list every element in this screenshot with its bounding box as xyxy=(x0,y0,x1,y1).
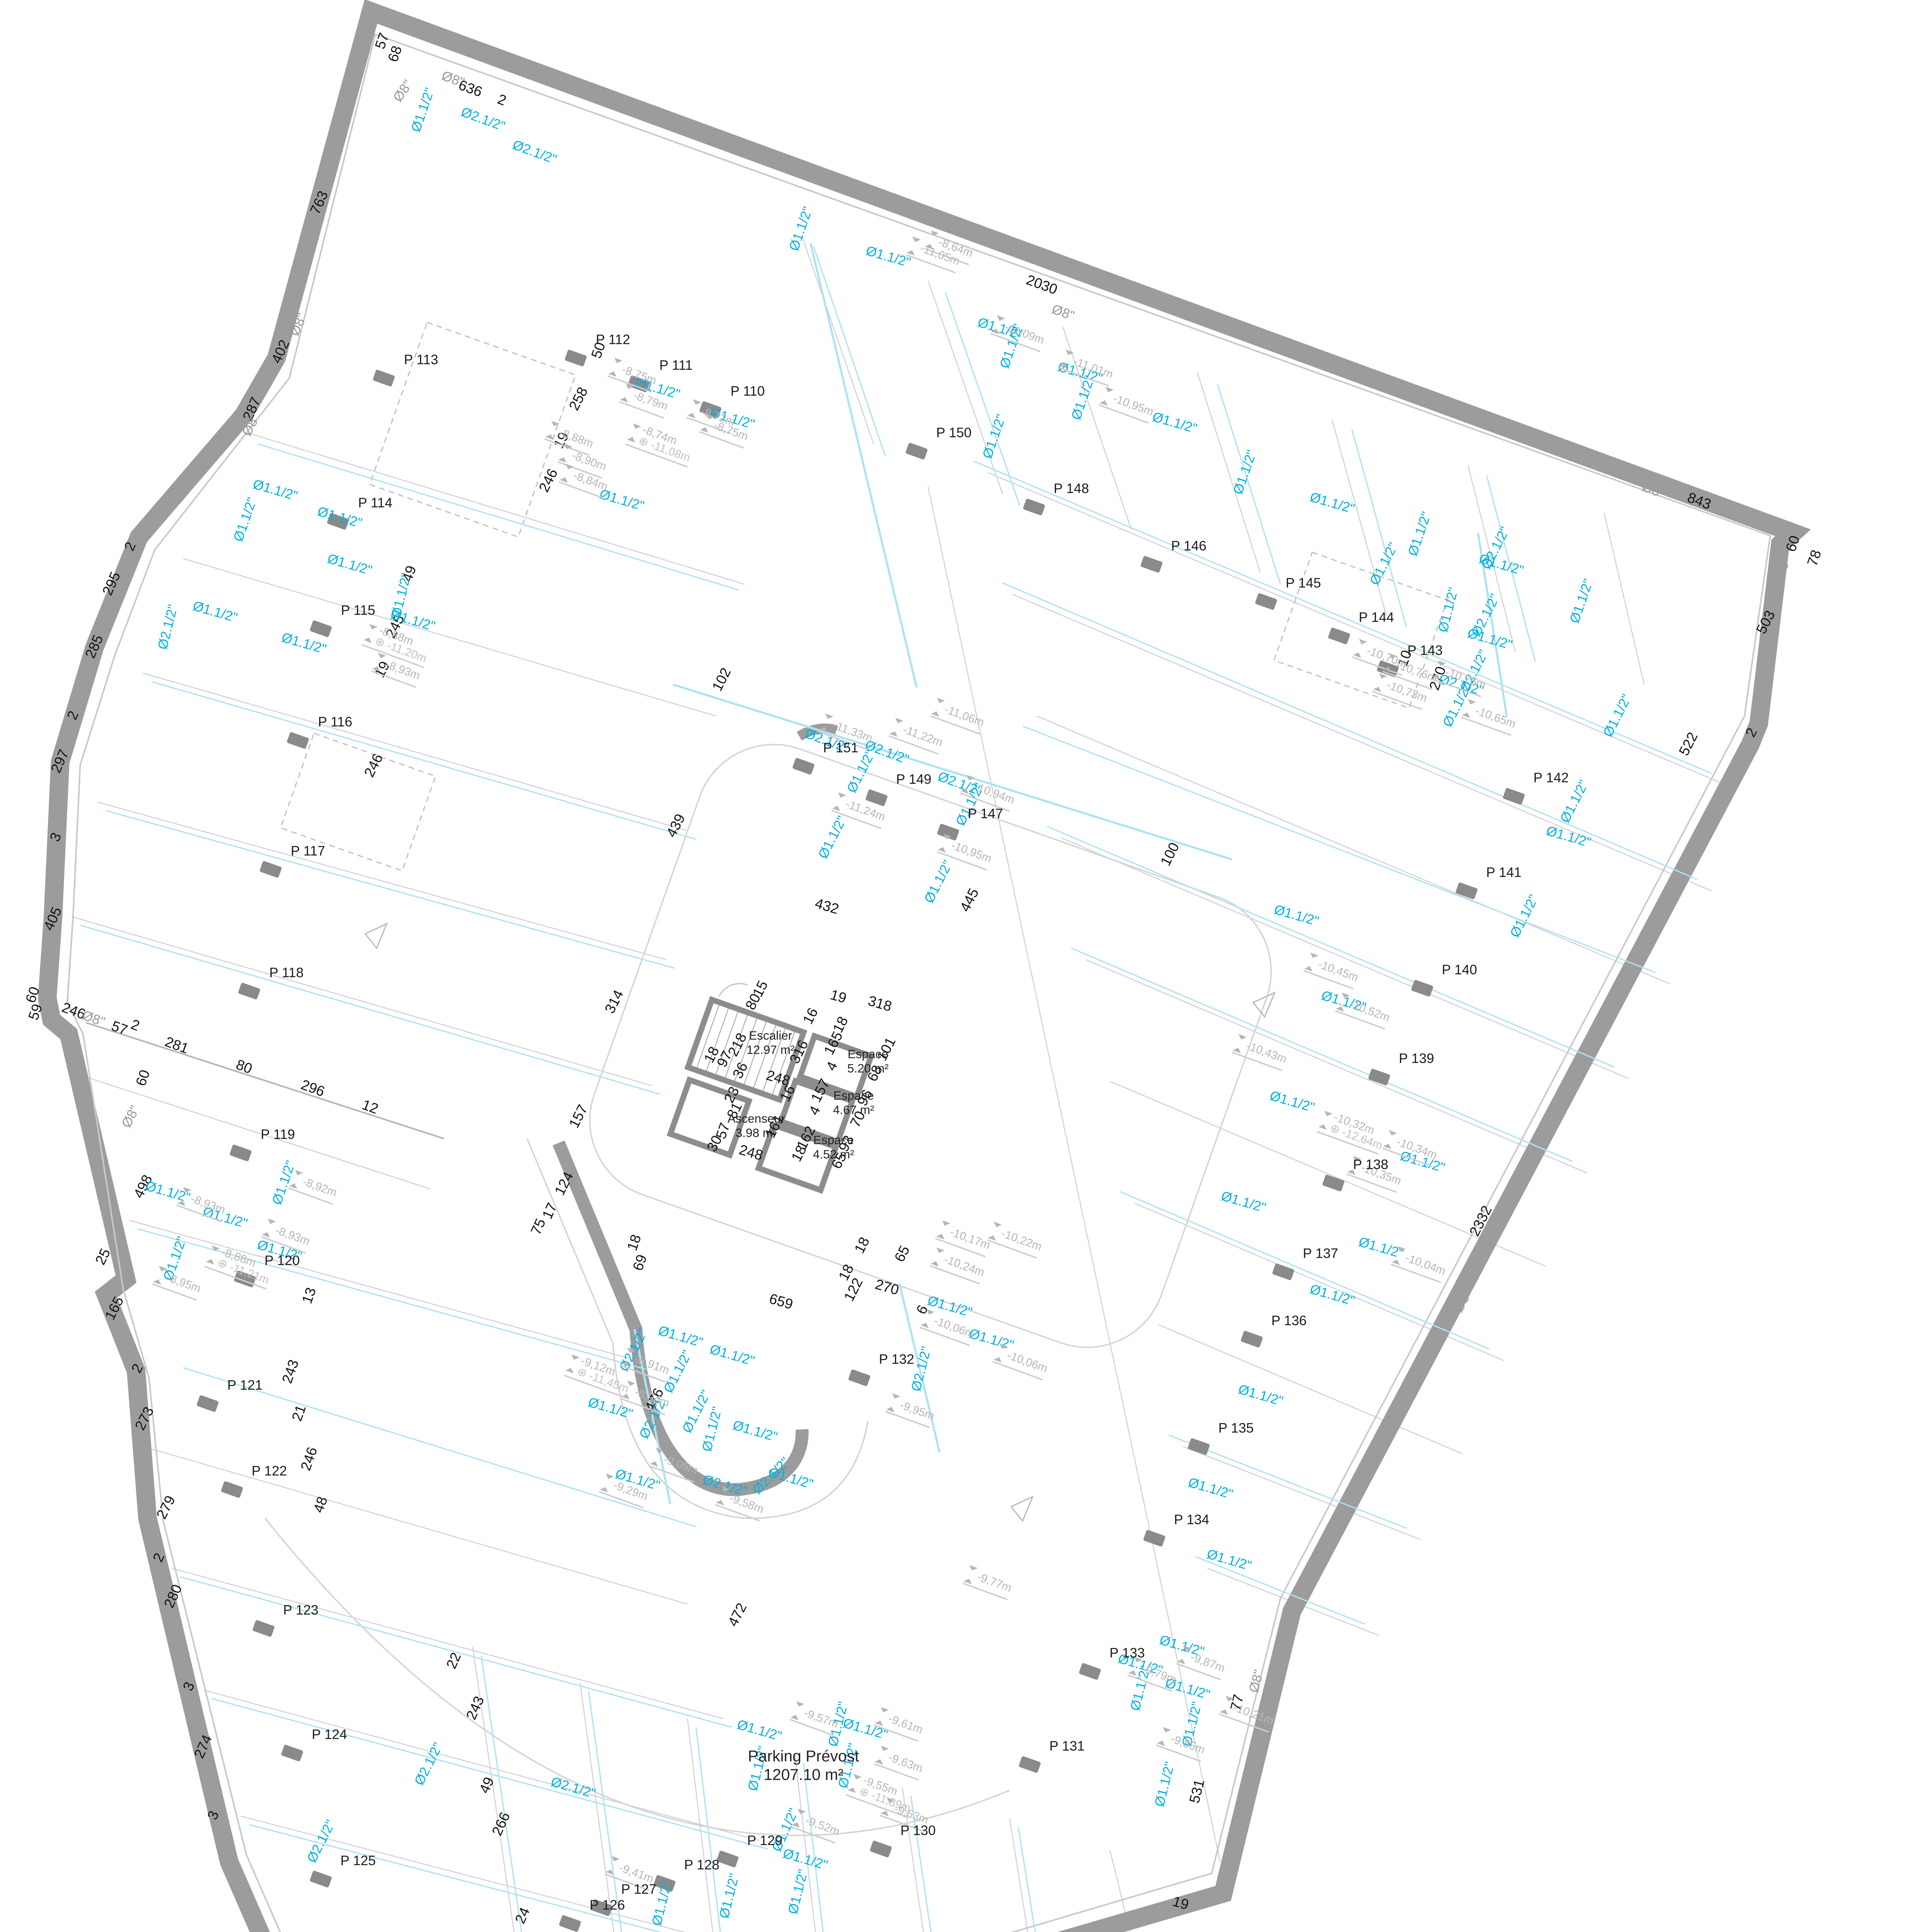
column-marker xyxy=(905,442,928,460)
column-label: P 143 xyxy=(1407,645,1442,658)
column-label: P 148 xyxy=(1054,483,1089,497)
existing-structures-dashed xyxy=(281,322,1447,871)
room-label: Parking Prévost1207.10 m² xyxy=(748,1748,859,1786)
column-label: P 125 xyxy=(340,1855,376,1869)
column-label: P 119 xyxy=(261,1129,295,1143)
column-label: P 120 xyxy=(265,1255,300,1269)
column-label: P 123 xyxy=(283,1604,318,1618)
column-marker xyxy=(1140,556,1163,573)
room-label: Espace4.67 m² xyxy=(833,1088,874,1117)
column-label: P 130 xyxy=(900,1825,935,1838)
column-label: P 114 xyxy=(358,497,393,511)
column-label: P 122 xyxy=(252,1466,287,1479)
column-marker xyxy=(1255,593,1277,610)
column-marker xyxy=(1368,1068,1391,1086)
column-marker xyxy=(716,1850,739,1868)
column-marker xyxy=(792,757,815,775)
column-marker xyxy=(1411,980,1434,997)
column-label: P 124 xyxy=(312,1729,347,1743)
column-label: P 149 xyxy=(896,774,931,787)
room-label: Escalier12.97 m² xyxy=(747,1028,794,1058)
column-label: P 118 xyxy=(269,967,304,981)
column-marker xyxy=(310,1870,332,1888)
column-label: P 150 xyxy=(936,427,971,440)
column-marker xyxy=(869,1840,892,1858)
column-marker xyxy=(848,1369,871,1386)
column-marker xyxy=(229,1144,252,1162)
column-label: P 112 xyxy=(596,334,630,348)
column-label: P 113 xyxy=(404,354,438,367)
column-marker xyxy=(1240,1330,1263,1348)
column-label: P 146 xyxy=(1171,540,1206,554)
column-label: P 136 xyxy=(1271,1315,1306,1329)
main-loop-pipe-8in xyxy=(67,34,1770,1932)
perimeter-wall xyxy=(47,12,1793,1932)
column-label: P 111 xyxy=(659,360,692,373)
column-label: P 138 xyxy=(1353,1159,1388,1173)
column-label: P 151 xyxy=(823,742,858,756)
column-label: P 140 xyxy=(1442,964,1477,978)
column-marker xyxy=(1455,882,1478,900)
column-label: P 141 xyxy=(1486,867,1521,880)
column-marker xyxy=(310,620,332,638)
room-label: Espace4.52 m² xyxy=(813,1133,854,1162)
column-label: P 145 xyxy=(1286,578,1321,591)
column-marker xyxy=(1272,1263,1295,1281)
column-label: P 126 xyxy=(590,1900,625,1913)
room-label: Ascenseur3.98 m² xyxy=(728,1111,785,1141)
column-marker xyxy=(221,1481,243,1498)
column-marker xyxy=(1322,1174,1345,1192)
column-markers xyxy=(196,349,1525,1932)
column-label: P 142 xyxy=(1534,772,1569,786)
column-marker xyxy=(281,1744,304,1762)
column-marker xyxy=(565,349,587,367)
column-marker xyxy=(1328,627,1350,645)
column-marker xyxy=(559,1915,582,1932)
column-marker xyxy=(238,982,261,1000)
floor-plan-stage: 5768636220308436078503252223327753119145… xyxy=(0,0,1932,1932)
column-marker xyxy=(372,369,395,387)
column-label: P 135 xyxy=(1218,1423,1253,1436)
column-label: P 139 xyxy=(1399,1053,1434,1066)
column-label: P 132 xyxy=(879,1354,914,1367)
column-label: P 128 xyxy=(684,1859,719,1873)
column-marker xyxy=(1143,1529,1166,1547)
column-marker xyxy=(1019,1756,1041,1773)
column-marker xyxy=(252,1620,275,1637)
column-label: P 134 xyxy=(1174,1514,1209,1528)
column-label: P 137 xyxy=(1303,1248,1338,1261)
column-label: P 131 xyxy=(1049,1740,1085,1754)
column-label: P 147 xyxy=(968,808,1003,821)
column-marker xyxy=(1502,787,1525,805)
column-label: P 133 xyxy=(1109,1648,1145,1661)
column-label: P 117 xyxy=(291,845,325,859)
column-label: P 115 xyxy=(341,605,375,618)
column-label: P 121 xyxy=(227,1379,262,1393)
column-label: P 110 xyxy=(730,386,765,399)
column-label: P 144 xyxy=(1359,612,1394,626)
column-label: P 129 xyxy=(747,1835,782,1849)
door-swing-arc xyxy=(719,977,747,1004)
column-marker xyxy=(1023,498,1046,515)
column-marker xyxy=(196,1395,219,1412)
room-label: Espace5.20 m² xyxy=(847,1047,889,1076)
column-marker xyxy=(1078,1663,1101,1680)
column-label: P 127 xyxy=(621,1884,656,1897)
column-marker xyxy=(259,861,282,878)
column-label: P 116 xyxy=(318,716,352,730)
column-marker xyxy=(287,732,310,749)
